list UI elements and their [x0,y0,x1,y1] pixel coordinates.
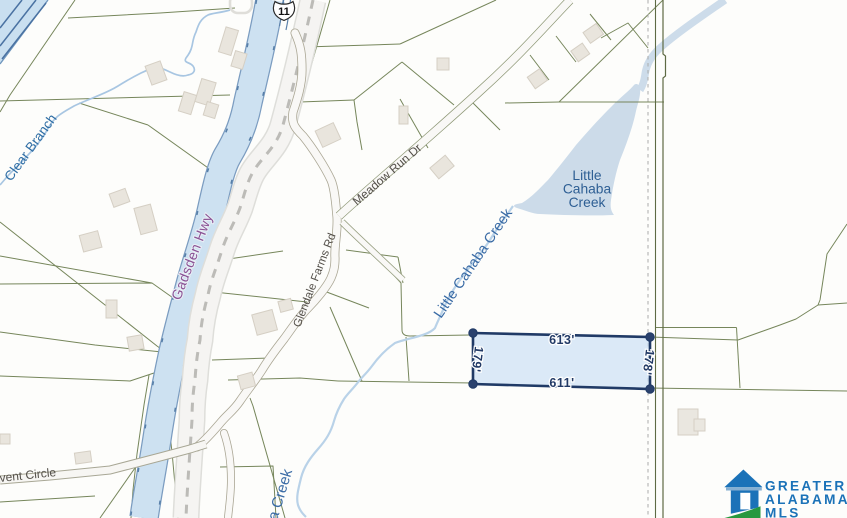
svg-text:613': 613' [549,333,575,347]
svg-text:11: 11 [278,6,290,18]
svg-text:MLS: MLS [765,506,801,518]
svg-text:Creek: Creek [569,195,606,210]
svg-text:611': 611' [549,376,574,390]
